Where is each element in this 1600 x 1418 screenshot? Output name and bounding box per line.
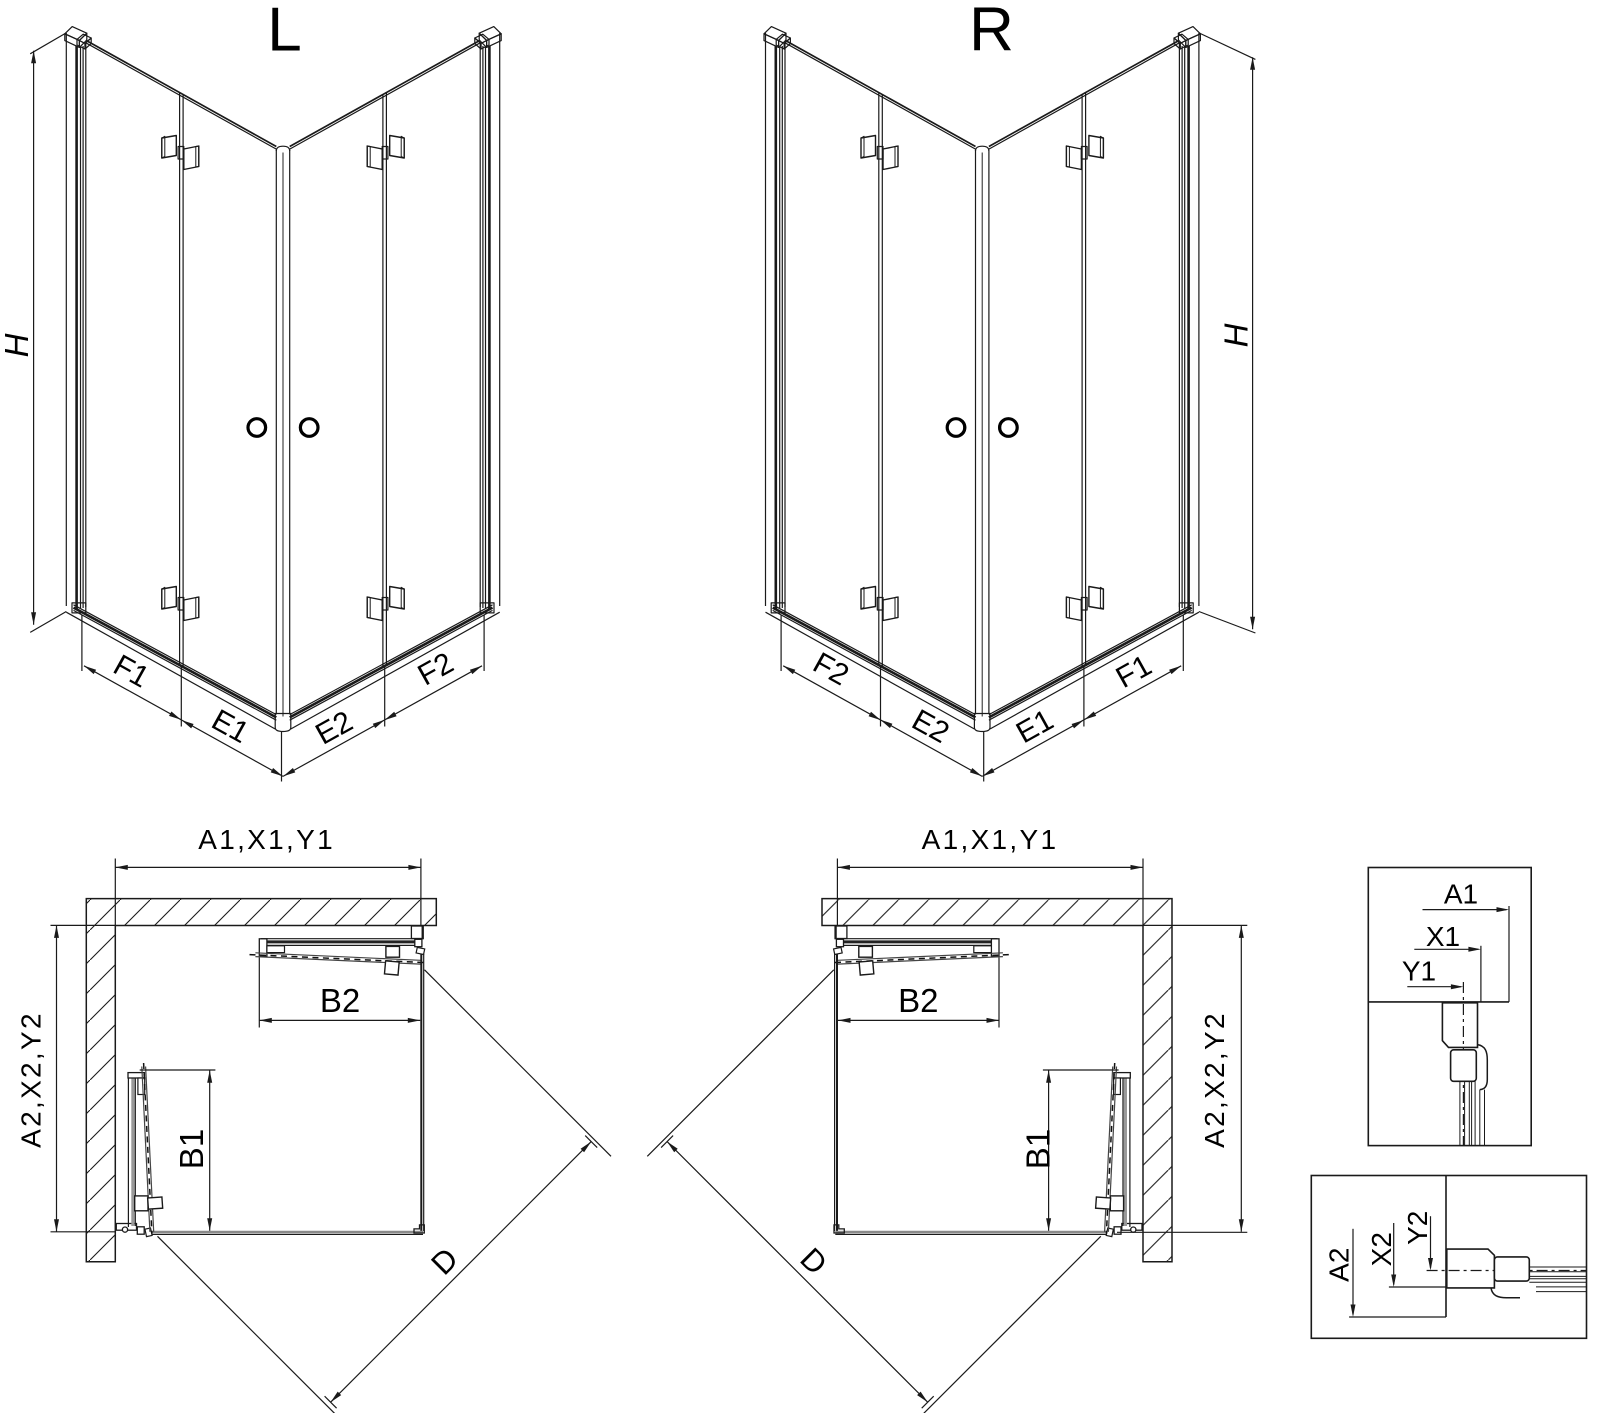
svg-text:A2,X2,Y2: A2,X2,Y2 — [1199, 1011, 1230, 1148]
svg-text:B1: B1 — [1020, 1129, 1057, 1169]
svg-text:A1,X1,Y1: A1,X1,Y1 — [922, 824, 1059, 855]
svg-text:H: H — [1218, 323, 1255, 347]
svg-text:A1,X1,Y1: A1,X1,Y1 — [198, 824, 335, 855]
svg-text:A1: A1 — [1444, 879, 1478, 910]
svg-text:B1: B1 — [173, 1129, 210, 1169]
svg-text:H: H — [0, 333, 35, 357]
svg-text:A2: A2 — [1324, 1248, 1355, 1282]
svg-text:X2: X2 — [1366, 1232, 1397, 1266]
svg-text:L: L — [267, 0, 301, 65]
svg-text:Y1: Y1 — [1402, 956, 1436, 987]
svg-text:X1: X1 — [1426, 921, 1460, 952]
svg-text:A2,X2,Y2: A2,X2,Y2 — [16, 1011, 47, 1148]
svg-text:B2: B2 — [320, 982, 360, 1019]
svg-text:B2: B2 — [898, 982, 938, 1019]
svg-text:Y2: Y2 — [1402, 1211, 1433, 1245]
svg-text:R: R — [969, 0, 1014, 65]
